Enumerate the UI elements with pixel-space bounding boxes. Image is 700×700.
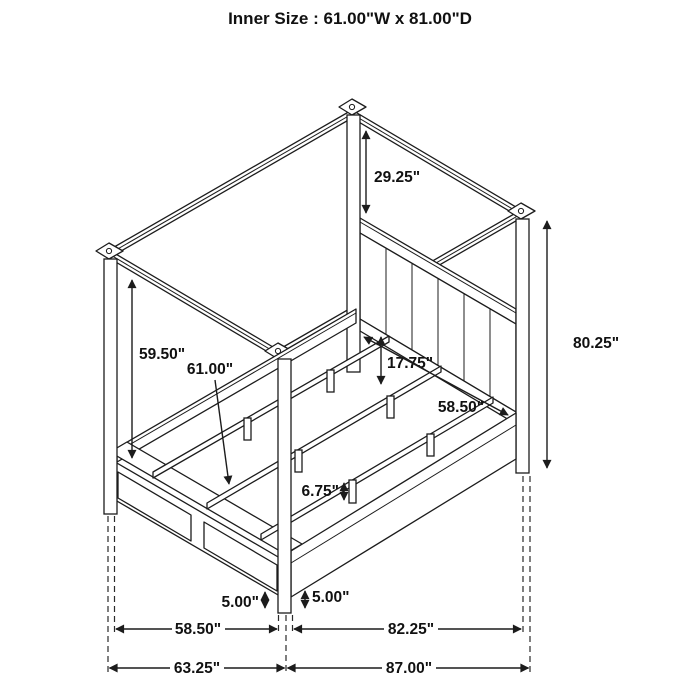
slat-leg [427,434,434,456]
dim-label-58-50-bottom: 58.50" [175,621,221,638]
post-front [278,359,291,613]
post-back [347,115,360,372]
dim-label-82-25: 82.25" [388,621,434,638]
post-left [104,259,117,514]
dim-label-80-25: 80.25" [573,335,619,352]
dim-overall-depth: 87.00" [288,660,529,677]
slat-leg [327,370,334,392]
post-right [516,219,529,473]
dim-foot-clearance-left: 5.00" [221,592,265,611]
corner-cap-back [339,99,366,115]
dim-overall-height: 80.25" [547,221,619,468]
slat-leg [295,450,302,472]
headboard [360,218,516,424]
canopy-bed-dimension-diagram: Inner Size : 61.00"W x 81.00"D [0,0,700,700]
dim-label-5-00-left: 5.00" [221,594,259,611]
dim-overall-width: 63.25" [110,660,285,677]
dim-canopy-to-headboard: 29.25" [366,131,420,213]
dim-label-17-75: 17.75" [387,355,433,372]
dim-label-5-00-right: 5.00" [312,589,350,606]
dim-label-58-50-upper: 58.50" [438,399,484,416]
inner-size-title: Inner Size : 61.00"W x 81.00"D [228,9,472,28]
dim-label-63-25: 63.25" [174,660,220,677]
dim-side-rail-length: 82.25" [294,621,521,638]
slat-leg-measured [349,480,356,503]
dim-inner-width: 61.00" [187,361,233,484]
dim-label-29-25: 29.25" [374,169,420,186]
dim-footboard-width: 58.50" [116,621,277,638]
dim-label-6-75: 6.75" [301,483,339,500]
dim-label-59-50: 59.50" [139,346,185,363]
bed-diagram-svg: Inner Size : 61.00"W x 81.00"D [0,0,700,700]
dim-label-61-00: 61.00" [187,361,233,378]
dim-foot-clearance-right: 5.00" [305,589,350,608]
slat-leg [244,418,251,440]
dim-slat-leg-height: 6.75" [301,483,344,500]
slat-leg [387,396,394,418]
dim-label-87-00: 87.00" [386,660,432,677]
